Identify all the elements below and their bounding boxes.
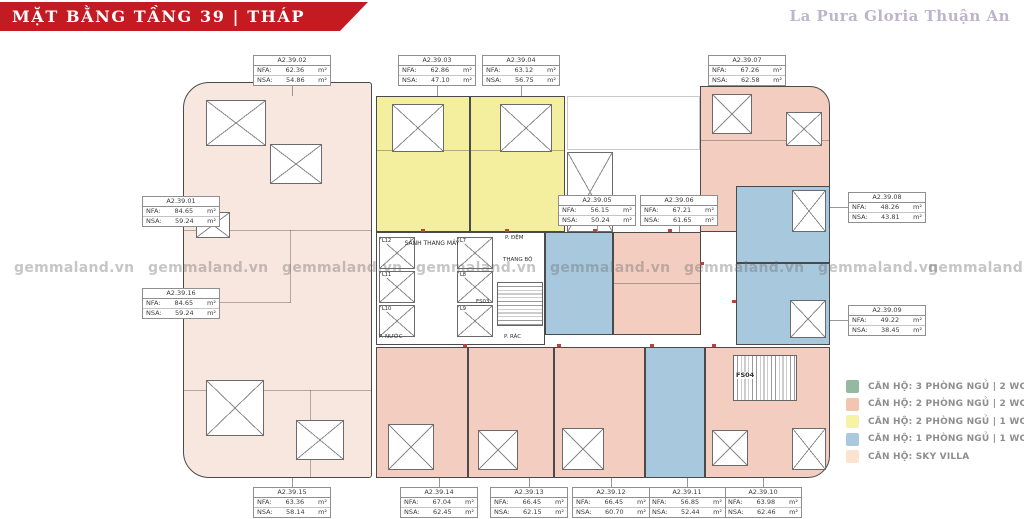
unit-area-text: 84.65 [174,299,193,308]
shaft-box [786,112,822,146]
unit-area-text: m² [463,76,472,85]
unit-code: A2.39.12 [573,488,649,498]
brand-logo-text: La Pura Gloria Thuận An [790,7,1010,25]
legend-label: CĂN HỘ: 3 PHÒNG NGỦ | 2 WC [868,382,1024,392]
unit-nsa-row: NSA:62.46m² [725,508,801,517]
unit-area-text: m² [465,508,474,517]
legend-label: CĂN HỘ: 2 PHÒNG NGỦ | 2 WC [868,399,1024,409]
unit-area-text: m² [463,66,472,75]
unit-area-text: m² [207,217,216,226]
buffer-room-label: P. ĐỆM [505,235,523,242]
lobby-label: SẢNH THANG MÁY [404,241,460,248]
legend-label: CĂN HỘ: 1 PHÒNG NGỦ | 1 WC [868,434,1024,444]
unit-area-text: 66.45 [604,498,623,507]
shaft-box [792,190,826,232]
unit-area-text: m² [713,508,722,517]
unit-area-text: m² [547,66,556,75]
watermark-text: gemmaland.vn [550,260,670,276]
water-room-label: P. NƯỚC [379,334,403,341]
unit-label-A2.39.04: A2.39.04NFA:63.12m²NSA:56.75m² [482,55,560,86]
elevator-box: L10 [379,305,415,337]
unit-area-text: 56.85 [680,498,699,507]
watermark-text: gemmaland.vn [818,260,938,276]
shaft-box [206,380,264,436]
unit-area-text: NFA: [652,498,667,507]
unit-area-text: 67.26 [740,66,759,75]
unit-area-text: m² [705,216,714,225]
legend-swatch [846,398,859,411]
unit-area-text: NSA: [146,217,162,226]
unit-code: A2.39.10 [725,488,801,498]
unit-area-text: m² [555,508,564,517]
door-marker [650,344,654,347]
unit-label-A2.39.03: A2.39.03NFA:62.86m²NSA:47.10m² [398,55,476,86]
unit-code: A2.39.08 [849,193,925,203]
elevator-tag: L10 [381,306,392,312]
unit-area-text: m² [789,498,798,507]
unit-area-text: NSA: [494,508,510,517]
unit-nsa-row: NSA:62.15m² [491,508,567,517]
unit-area-text: 43.81 [881,213,900,222]
shaft-box [206,100,266,146]
unit-area-text: NSA: [576,508,592,517]
unit-label-A2.39.11: A2.39.11NFA:56.85m²NSA:52.44m² [648,487,726,518]
stair-fs03-label: FS03 [476,299,490,306]
unit-nsa-row: NSA:50.24m² [559,216,635,225]
unit-nfa-row: NFA:67.21m² [641,206,717,216]
unit-nsa-row: NSA:61.65m² [641,216,717,225]
unit-area-text: NSA: [486,76,502,85]
unit-code: A2.39.15 [254,488,330,498]
unit-area-text: NFA: [146,299,161,308]
unit-nsa-row: NSA:43.81m² [849,213,925,222]
leader-line [611,478,612,487]
unit-nfa-row: NFA:62.36m² [254,66,330,76]
unit-area-text: 63.12 [514,66,533,75]
unit-area-text: NSA: [404,508,420,517]
page-title-banner: MẶT BẰNG TẦNG 39 | THÁP GEMINI [0,2,368,31]
leader-line [763,478,764,487]
unit-label-A2.39.06: A2.39.06NFA:67.21m²NSA:61.65m² [640,195,718,226]
unit-label-A2.39.15: A2.39.15NFA:63.36m²NSA:58.14m² [253,487,331,518]
unit-area-text: m² [637,508,646,517]
door-marker [712,344,716,347]
unit-area-text: m² [465,498,474,507]
unit-nfa-row: NFA:56.15m² [559,206,635,216]
legend-row: CĂN HỘ: 3 PHÒNG NGỦ | 2 WC [846,380,1024,393]
unit-area-text: m² [913,203,922,212]
unit-code: A2.39.09 [849,306,925,316]
floorplan-page: MẶT BẰNG TẦNG 39 | THÁP GEMINI La Pura G… [0,0,1024,519]
unit-code: A2.39.11 [649,488,725,498]
legend-swatch [846,415,859,428]
unit-area-text: m² [318,508,327,517]
unit-nfa-row: NFA:67.04m² [401,498,477,508]
legend-swatch [846,380,859,393]
unit-area-text: 60.70 [605,508,624,517]
unit-area-text: NSA: [852,326,868,335]
unit-area-text: 62.36 [285,66,304,75]
unit-nfa-row: NFA:56.85m² [649,498,725,508]
unit-area-text: 62.86 [430,66,449,75]
unit-nsa-row: NSA:59.24m² [143,309,219,318]
door-marker [668,229,672,232]
stair-fs04-label: FS04 [736,372,754,379]
leader-line [439,478,440,487]
unit-area-text: 84.65 [174,207,193,216]
shaft-box [478,430,518,470]
unit-nfa-row: NFA:63.98m² [725,498,801,508]
unit-area-text: 56.15 [590,206,609,215]
unit-area-text: NFA: [404,498,419,507]
unit-area-text: NFA: [146,207,161,216]
unit-area-text: m² [207,207,216,216]
unit-area-text: NSA: [644,216,660,225]
unit-code: A2.39.16 [143,289,219,299]
unit-label-A2.39.01: A2.39.01NFA:84.65m²NSA:59.24m² [142,196,220,227]
unit-label-A2.39.07: A2.39.07NFA:67.26m²NSA:62.58m² [708,55,786,86]
shaft-box [296,420,344,460]
unit-area-text: NSA: [257,76,273,85]
unit-area-text: m² [637,498,646,507]
unit-nfa-row: NFA:67.26m² [709,66,785,76]
unit-area-text: NSA: [728,508,744,517]
unit-area-text: NFA: [257,66,272,75]
unit-area-text: m² [318,66,327,75]
page-title: MẶT BẰNG TẦNG 39 | THÁP GEMINI [12,7,305,55]
unit-area-text: m² [207,299,216,308]
shaft-box [790,300,826,338]
unit-area-text: NFA: [852,316,867,325]
unit-area-text: m² [913,213,922,222]
unit-area-text: m² [547,76,556,85]
unit-area-text: m² [623,216,632,225]
unit-label-A2.39.12: A2.39.12NFA:66.45m²NSA:60.70m² [572,487,650,518]
unit-code: A2.39.02 [254,56,330,66]
unit-label-A2.39.02: A2.39.02NFA:62.36m²NSA:54.86m² [253,55,331,86]
shaft-box [392,104,444,152]
unit-nfa-row: NFA:84.65m² [143,207,219,217]
unit-nsa-row: NSA:56.75m² [483,76,559,85]
unit-area-text: m² [773,66,782,75]
unit-label-A2.39.09: A2.39.09NFA:49.22m²NSA:38.45m² [848,305,926,336]
unit-code: A2.39.14 [401,488,477,498]
unit-nfa-row: NFA:48.26m² [849,203,925,213]
unit-area-text: 67.21 [672,206,691,215]
leader-line [830,320,848,321]
unit-area-text: NFA: [852,203,867,212]
unit-area-text: 67.04 [432,498,451,507]
unit-nsa-row: NSA:60.70m² [573,508,649,517]
unit-nfa-row: NFA:63.12m² [483,66,559,76]
unit-area-text: m² [773,76,782,85]
unit-block-05 [545,232,613,335]
legend-swatch [846,433,859,446]
unit-nsa-row: NSA:52.44m² [649,508,725,517]
unit-area-text: 66.45 [522,498,541,507]
unit-area-text: m² [713,498,722,507]
unit-area-text: NSA: [712,76,728,85]
legend-label: CĂN HỘ: SKY VILLA [868,452,969,462]
unit-area-text: 62.58 [741,76,760,85]
unit-area-text: NFA: [728,498,743,507]
leader-line [292,478,293,487]
unit-area-text: 38.45 [881,326,900,335]
unit-area-text: 50.24 [591,216,610,225]
legend-row: CĂN HỘ: SKY VILLA [846,450,1024,463]
unit-area-text: NFA: [486,66,501,75]
unit-nsa-row: NSA:38.45m² [849,326,925,335]
unit-code: A2.39.06 [641,196,717,206]
unit-area-text: 49.22 [880,316,899,325]
legend-row: CĂN HỘ: 1 PHÒNG NGỦ | 1 WC [846,433,1024,446]
unit-area-text: NFA: [576,498,591,507]
unit-code: A2.39.03 [399,56,475,66]
unit-area-text: 52.44 [681,508,700,517]
legend-row: CĂN HỘ: 2 PHÒNG NGỦ | 1 WC [846,415,1024,428]
unit-area-text: NSA: [652,508,668,517]
unit-nfa-row: NFA:66.45m² [491,498,567,508]
unit-area-text: 62.46 [757,508,776,517]
unit-nsa-row: NSA:62.58m² [709,76,785,85]
door-marker [463,344,467,347]
elevator-tag: L9 [459,306,467,312]
unit-area-text: m² [913,326,922,335]
unit-area-text: m² [623,206,632,215]
unit-area-text: NSA: [852,213,868,222]
unit-area-text: m² [789,508,798,517]
leader-line [529,478,530,487]
unit-area-text: 63.98 [756,498,775,507]
door-marker [557,344,561,347]
unit-label-A2.39.10: A2.39.10NFA:63.98m²NSA:62.46m² [724,487,802,518]
door-marker [421,229,425,232]
unit-area-text: 58.14 [286,508,305,517]
unit-area-text: 63.36 [285,498,304,507]
legend-row: CĂN HỘ: 2 PHÒNG NGỦ | 2 WC [846,398,1024,411]
watermark-text: gemmaland.vn [928,260,1024,276]
shaft-box [270,144,322,184]
unit-nfa-row: NFA:49.22m² [849,316,925,326]
unit-code: A2.39.07 [709,56,785,66]
unit-area-text: NFA: [712,66,727,75]
unit-label-A2.39.16: A2.39.16NFA:84.65m²NSA:59.24m² [142,288,220,319]
unit-area-text: 54.86 [286,76,305,85]
partition-wall [613,283,701,284]
unit-label-A2.39.05: A2.39.05NFA:56.15m²NSA:50.24m² [558,195,636,226]
trash-room-label: P. RÁC [504,334,521,341]
unit-nsa-row: NSA:58.14m² [254,508,330,517]
unit-label-A2.39.13: A2.39.13NFA:66.45m²NSA:62.15m² [490,487,568,518]
watermark-text: gemmaland.vn [14,260,134,276]
unit-area-text: NFA: [402,66,417,75]
unit-area-text: NSA: [146,309,162,318]
legend-swatch [846,450,859,463]
unit-area-text: m² [207,309,216,318]
unit-area-text: NFA: [644,206,659,215]
shaft-box [562,428,604,470]
elevator-box: L9 [457,305,493,337]
door-marker [732,300,736,303]
legend-label: CĂN HỘ: 2 PHÒNG NGỦ | 1 WC [868,417,1024,427]
unit-nfa-row: NFA:63.36m² [254,498,330,508]
watermark-text: gemmaland.vn [282,260,402,276]
unit-area-text: NFA: [257,498,272,507]
unit-label-A2.39.14: A2.39.14NFA:67.04m²NSA:62.45m² [400,487,478,518]
unit-area-text: m² [555,498,564,507]
unit-nfa-row: NFA:62.86m² [399,66,475,76]
unit-area-text: 62.45 [433,508,452,517]
unit-area-text: m² [318,498,327,507]
shaft-box [500,104,552,152]
unit-area-text: 61.65 [673,216,692,225]
unit-label-A2.39.08: A2.39.08NFA:48.26m²NSA:43.81m² [848,192,926,223]
unit-area-text: NSA: [562,216,578,225]
leader-line [687,478,688,487]
unit-nsa-row: NSA:54.86m² [254,76,330,85]
unit-area-text: m² [705,206,714,215]
shaft-box [712,94,752,134]
unit-block-11 [645,347,705,478]
unit-area-text: NFA: [562,206,577,215]
unit-area-text: m² [913,316,922,325]
unit-code: A2.39.04 [483,56,559,66]
unit-area-text: 59.24 [175,309,194,318]
stair-fs03 [497,282,543,326]
unit-area-text: m² [318,76,327,85]
legend: CĂN HỘ: 3 PHÒNG NGỦ | 2 WCCĂN HỘ: 2 PHÒN… [846,380,1024,468]
watermark-text: gemmaland.vn [684,260,804,276]
roof-void-area [567,96,700,150]
unit-nsa-row: NSA:62.45m² [401,508,477,517]
unit-area-text: NFA: [494,498,509,507]
unit-area-text: 62.15 [523,508,542,517]
unit-area-text: 48.26 [880,203,899,212]
unit-code: A2.39.05 [559,196,635,206]
unit-area-text: NSA: [257,508,273,517]
watermark-text: gemmaland.vn [416,260,536,276]
unit-area-text: 47.10 [431,76,450,85]
leader-line [830,207,848,208]
unit-nfa-row: NFA:84.65m² [143,299,219,309]
shaft-box [792,428,826,470]
unit-code: A2.39.13 [491,488,567,498]
elevator-tag: L12 [381,238,392,244]
elevator-tag: L7 [459,238,467,244]
unit-nfa-row: NFA:66.45m² [573,498,649,508]
watermark-text: gemmaland.vn [148,260,268,276]
unit-area-text: 59.24 [175,217,194,226]
unit-area-text: NSA: [402,76,418,85]
unit-area-text: 56.75 [515,76,534,85]
door-marker [505,229,509,232]
unit-nsa-row: NSA:47.10m² [399,76,475,85]
unit-nsa-row: NSA:59.24m² [143,217,219,226]
shaft-box [712,430,748,466]
shaft-box [388,424,434,470]
unit-code: A2.39.01 [143,197,219,207]
